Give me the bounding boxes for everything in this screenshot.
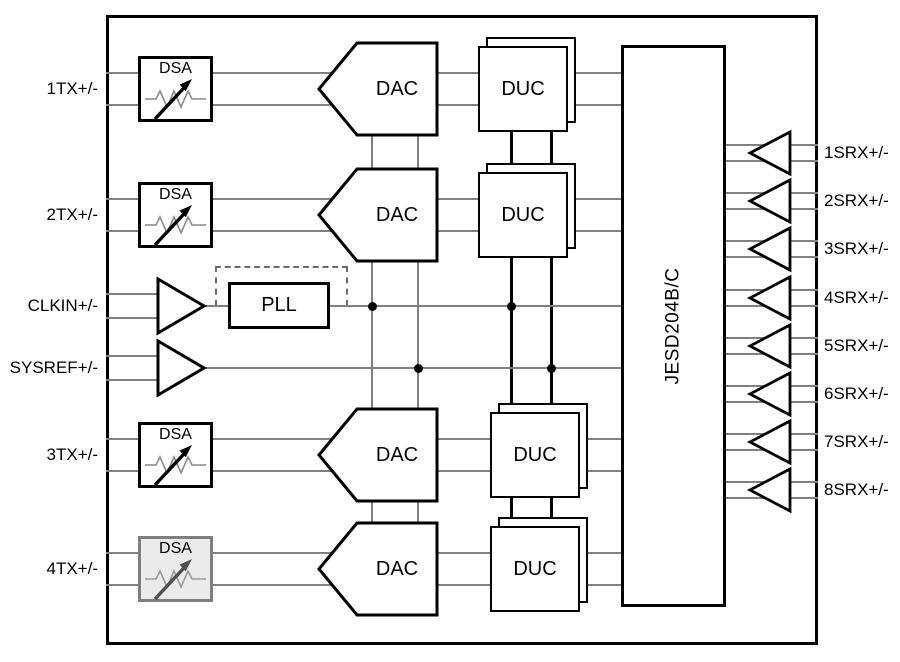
dsa-block: DSA [138,56,213,122]
srx-receiver-buffer-icon [748,419,792,465]
dac-label: DAC [357,78,437,101]
dac-sysref-bus [417,501,419,523]
variable-attenuator-icon [141,443,210,487]
duc-block: DUC [490,412,580,498]
variable-attenuator-icon [141,557,210,601]
dsa-label: DSA [159,540,192,557]
duc-clock-bus [510,132,513,163]
duc-clock-bus [510,258,513,403]
dsa-block: DSA [138,182,213,248]
duc-block: DUC [490,526,580,612]
sysref-distribution-wire [204,367,621,369]
clkin-port-label: CLKIN+/- [8,296,98,316]
srx-port-label: 4SRX+/- [824,288,900,308]
dac-label: DAC [357,558,437,581]
duc-clock-bus [510,498,513,517]
junction-dot [368,302,377,311]
srx-port-label: 7SRX+/- [824,432,900,452]
duc-sysref-bus [550,132,553,163]
tx-port-label: 4TX+/- [8,559,98,579]
srx-receiver-buffer-icon [748,226,792,272]
srx-port-label: 5SRX+/- [824,336,900,356]
srx-receiver-buffer-icon [748,323,792,369]
duc-sysref-bus [550,498,553,517]
sysref-port-label: SYSREF+/- [8,358,98,378]
functional-block-diagram: CLKIN+/- SYSREF+/- PLL JESD204B/C 1TX+/-… [0,0,900,662]
srx-receiver-buffer-icon [748,467,792,513]
jesd204-label: JESD204B/C [663,268,685,385]
srx-port-label: 6SRX+/- [824,384,900,404]
dac-clock-bus [371,135,373,169]
dac-label: DAC [357,204,437,227]
dsa-label: DSA [159,186,192,203]
jesd204-block: JESD204B/C [621,45,726,607]
dsa-block: DSA [138,422,213,488]
dsa-block: DSA [138,536,213,602]
srx-receiver-buffer-icon [748,371,792,417]
junction-dot [547,364,556,373]
dac-sysref-bus [417,135,419,169]
srx-receiver-buffer-icon [748,130,792,176]
dac-clock-bus [371,261,373,409]
clock-input-buffer-icon [156,277,206,335]
sysref-input-buffer-icon [156,339,206,397]
dsa-label: DSA [159,426,192,443]
junction-dot [414,364,423,373]
dsa-label: DSA [159,60,192,77]
variable-attenuator-icon [141,77,210,121]
srx-port-label: 1SRX+/- [824,143,900,163]
duc-sysref-bus [550,258,553,403]
srx-port-label: 8SRX+/- [824,480,900,500]
duc-block: DUC [478,172,568,258]
srx-receiver-buffer-icon [748,275,792,321]
tx-port-label: 3TX+/- [8,445,98,465]
junction-dot [507,302,516,311]
duc-block: DUC [478,46,568,132]
srx-port-label: 2SRX+/- [824,191,900,211]
dac-label: DAC [357,444,437,467]
tx-port-label: 2TX+/- [8,205,98,225]
dac-sysref-bus [417,261,419,409]
srx-receiver-buffer-icon [748,178,792,224]
variable-attenuator-icon [141,203,210,247]
dac-clock-bus [371,501,373,523]
tx-port-label: 1TX+/- [8,79,98,99]
pll-block: PLL [228,282,330,329]
srx-port-label: 3SRX+/- [824,239,900,259]
